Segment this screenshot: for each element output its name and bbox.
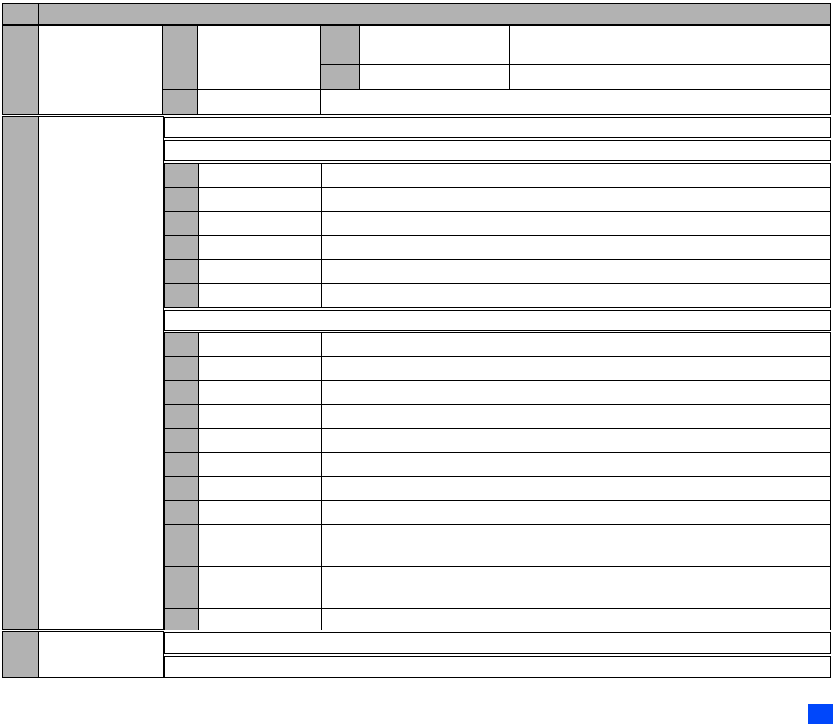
row-label-cell bbox=[165, 477, 199, 501]
footer-left-table bbox=[2, 631, 164, 678]
page-marker bbox=[808, 704, 833, 724]
main-section bbox=[2, 116, 831, 630]
row-value-cell bbox=[199, 381, 322, 405]
row-label-cell bbox=[165, 381, 199, 405]
row-label-cell bbox=[165, 609, 199, 631]
header-index-cell bbox=[3, 4, 39, 25]
row-value-cell bbox=[199, 164, 322, 188]
row-group-2 bbox=[164, 332, 831, 630]
wide-value-cell bbox=[322, 525, 831, 567]
wide-value-cell bbox=[322, 453, 831, 477]
row-value-cell bbox=[199, 477, 322, 501]
row-value-cell bbox=[198, 90, 321, 115]
row-label-cell bbox=[165, 212, 199, 236]
row-value-cell bbox=[199, 609, 322, 631]
row-value-cell bbox=[199, 188, 322, 212]
row-value-cell bbox=[199, 453, 322, 477]
row-label-cell bbox=[165, 188, 199, 212]
row-value-cell bbox=[199, 357, 322, 381]
row-value-cell bbox=[199, 429, 322, 453]
row-value-cell bbox=[199, 567, 322, 609]
wide-value-cell bbox=[322, 260, 831, 284]
row-value-cell bbox=[199, 525, 322, 567]
sub-label-cell bbox=[321, 26, 360, 65]
wide-value-cell bbox=[322, 284, 831, 308]
section-label-cell bbox=[3, 632, 39, 678]
wide-value-cell bbox=[322, 212, 831, 236]
wide-value-cell bbox=[510, 26, 831, 65]
section-value-cell bbox=[39, 117, 164, 630]
wide-value-cell bbox=[322, 236, 831, 260]
row-label-cell bbox=[165, 284, 199, 308]
row-value-cell bbox=[199, 236, 322, 260]
top-section-table bbox=[2, 25, 831, 115]
header-title-cell bbox=[39, 4, 831, 25]
row-value-cell bbox=[199, 284, 322, 308]
footer-rows bbox=[164, 631, 831, 678]
row-value-cell bbox=[199, 405, 322, 429]
row-label-cell bbox=[165, 333, 199, 357]
wide-value-cell bbox=[322, 609, 831, 631]
wide-value-cell bbox=[321, 90, 831, 115]
row-label-cell bbox=[163, 26, 198, 90]
row-value-cell bbox=[199, 260, 322, 284]
wide-value-cell bbox=[322, 357, 831, 381]
document-page bbox=[0, 0, 834, 724]
sub-label-cell bbox=[321, 65, 360, 90]
wide-value-cell bbox=[322, 567, 831, 609]
section-value-cell bbox=[39, 632, 164, 678]
row-label-cell bbox=[165, 236, 199, 260]
main-section-rows bbox=[164, 116, 831, 630]
wide-value-cell bbox=[510, 65, 831, 90]
row-label-cell bbox=[165, 164, 199, 188]
section-label-cell bbox=[3, 117, 39, 630]
header-bar bbox=[2, 3, 831, 25]
footer-section bbox=[2, 631, 831, 678]
footer-row bbox=[164, 632, 831, 654]
wide-value-cell bbox=[322, 164, 831, 188]
section-value-cell bbox=[39, 26, 163, 115]
wide-value-cell bbox=[322, 405, 831, 429]
intro-row bbox=[164, 117, 831, 138]
row-value-cell bbox=[199, 501, 322, 525]
row-label-cell bbox=[165, 405, 199, 429]
intro-row bbox=[164, 140, 831, 161]
row-value-cell bbox=[198, 26, 321, 90]
row-value-cell bbox=[199, 212, 322, 236]
row-group-1 bbox=[164, 163, 831, 308]
row-label-cell bbox=[165, 525, 199, 567]
section-label-cell bbox=[3, 26, 39, 115]
row-label-cell bbox=[165, 501, 199, 525]
wide-value-cell bbox=[322, 429, 831, 453]
row-label-cell bbox=[163, 90, 198, 115]
row-label-cell bbox=[165, 260, 199, 284]
row-label-cell bbox=[165, 567, 199, 609]
row-label-cell bbox=[165, 429, 199, 453]
wide-value-cell bbox=[322, 188, 831, 212]
wide-value-cell bbox=[322, 333, 831, 357]
row-label-cell bbox=[165, 453, 199, 477]
row-label-cell bbox=[165, 357, 199, 381]
footer-row bbox=[164, 656, 831, 678]
wide-value-cell bbox=[322, 501, 831, 525]
sub-value-cell bbox=[360, 65, 510, 90]
separator-row bbox=[164, 310, 831, 331]
sub-value-cell bbox=[360, 26, 510, 65]
main-section-left-table bbox=[2, 116, 164, 630]
row-value-cell bbox=[199, 333, 322, 357]
wide-value-cell bbox=[322, 477, 831, 501]
wide-value-cell bbox=[322, 381, 831, 405]
